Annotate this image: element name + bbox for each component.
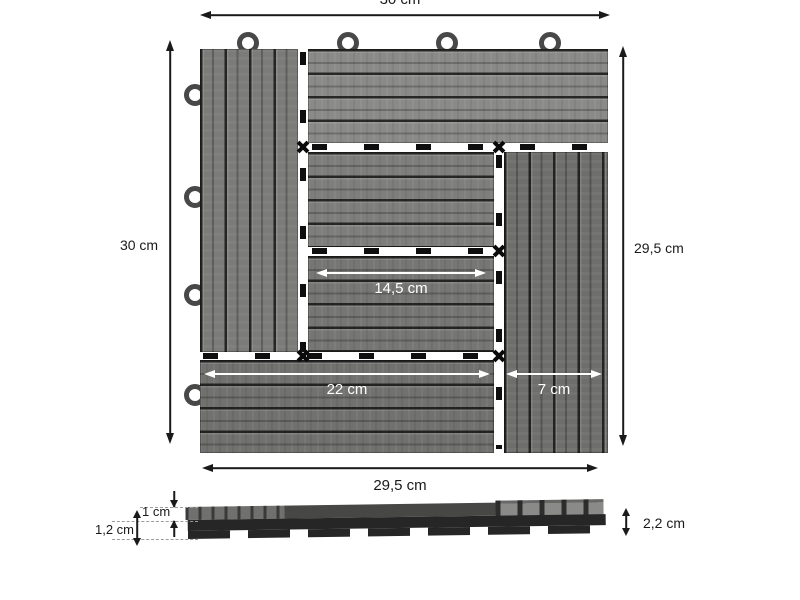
arrowhead-left-icon (202, 464, 213, 472)
dim-arrow-total-width (200, 9, 610, 21)
dim-line (207, 14, 603, 16)
arrowhead-left-icon (204, 370, 215, 378)
dim-line (169, 47, 171, 437)
plank-board-left (200, 49, 298, 352)
cross-clip-icon (492, 349, 506, 363)
joint-connectors (312, 144, 606, 150)
dim-label-right-board: 7 cm (506, 381, 602, 398)
plank-board-right (504, 152, 608, 453)
dim-arrow-tile-width (202, 462, 598, 474)
arrowhead-up-icon (622, 508, 630, 516)
dim-arrow-total-thickness (621, 508, 631, 536)
dim-arrow-bottom-board (204, 369, 490, 379)
dim-line (323, 272, 479, 274)
reference-line (112, 539, 198, 540)
dim-line (209, 467, 591, 469)
dim-line (625, 515, 627, 529)
decking-tile-side-view (185, 499, 606, 545)
joint-connectors (300, 52, 306, 352)
arrowhead-right-icon (475, 269, 486, 277)
dim-label-center-width: 14,5 cm (308, 280, 494, 297)
arrowhead-down-icon (133, 538, 141, 546)
dim-label-total-height: 30 cm (116, 237, 162, 253)
dim-label-total-thickness: 2,2 cm (643, 515, 685, 531)
arrowhead-down-icon (622, 528, 630, 536)
dim-arrow-tile-height (617, 46, 629, 446)
arrowhead-up-icon (619, 46, 627, 57)
dim-label-base-height: 1,2 cm (95, 522, 133, 537)
arrowhead-up-icon (166, 40, 174, 51)
arrowhead-up-icon (133, 510, 141, 518)
arrowhead-right-icon (599, 11, 610, 19)
product-dimension-diagram: 30 cm 30 cm 29,5 cm 29,5 cm (0, 0, 800, 600)
dim-line (211, 373, 483, 375)
dim-line (136, 517, 138, 539)
dim-line (513, 373, 595, 375)
arrowhead-down-icon (619, 435, 627, 446)
cross-clip-icon (296, 140, 310, 154)
arrowhead-right-icon (591, 370, 602, 378)
dim-label-tile-width: 29,5 cm (300, 477, 500, 494)
dim-arrow-total-height (164, 40, 176, 444)
plank-board-top (308, 49, 608, 143)
dim-arrow-board-top (169, 491, 179, 507)
arrowhead-right-icon (479, 370, 490, 378)
cross-clip-icon (296, 349, 310, 363)
plank-board-center-upper (308, 152, 494, 247)
arrowhead-right-icon (587, 464, 598, 472)
joint-connectors (496, 155, 502, 449)
dim-label-tile-height: 29,5 cm (634, 240, 684, 256)
dim-arrow-base-height (132, 510, 142, 546)
dim-arrow-right-board (506, 369, 602, 379)
dim-label-board-thickness: 1 cm (142, 504, 170, 519)
arrowhead-down-icon (170, 500, 178, 508)
dim-label-total-width: 30 cm (330, 0, 470, 8)
arrowhead-left-icon (506, 370, 517, 378)
dim-arrow-center-width (316, 268, 486, 278)
arrowhead-up-icon (170, 520, 178, 528)
arrowhead-left-icon (316, 269, 327, 277)
arrowhead-left-icon (200, 11, 211, 19)
joint-connectors (203, 353, 492, 359)
decking-tile-top-view: 14,5 cm 22 cm 7 cm (200, 49, 608, 453)
dim-arrow-board-bottom (169, 521, 179, 537)
arrowhead-down-icon (166, 433, 174, 444)
cross-clip-icon (492, 244, 506, 258)
joint-connectors (312, 248, 492, 254)
cross-clip-icon (492, 140, 506, 154)
dim-label-bottom-board: 22 cm (204, 381, 490, 398)
dim-line (622, 53, 624, 439)
